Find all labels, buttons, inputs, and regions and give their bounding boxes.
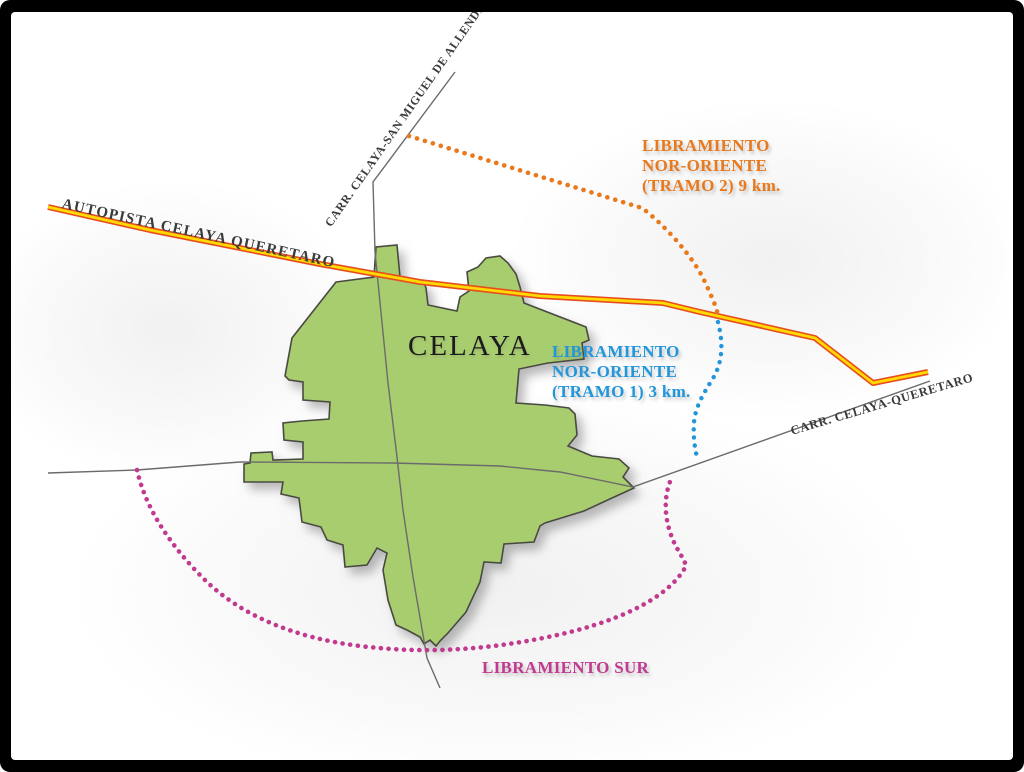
map-canvas [11, 12, 1013, 760]
libramiento-tramo2-line2: NOR-ORIENTE [642, 156, 781, 176]
city-name-label: CELAYA [408, 330, 532, 363]
libramiento-tramo1-label: LIBRAMIENTO NOR-ORIENTE (TRAMO 1) 3 km. [552, 342, 691, 402]
libramiento-tramo2-line1: LIBRAMIENTO [642, 136, 781, 156]
map-artwork: AUTOPISTA CELAYA QUERETARO CARR. CELAYA-… [11, 12, 1013, 760]
libramiento-tramo1-line2: NOR-ORIENTE [552, 362, 691, 382]
libramiento-tramo1-line1: LIBRAMIENTO [552, 342, 691, 362]
libramiento-tramo2-label: LIBRAMIENTO NOR-ORIENTE (TRAMO 2) 9 km. [642, 136, 781, 196]
libramiento-tramo2-line3: (TRAMO 2) 9 km. [642, 176, 781, 196]
map-frame: AUTOPISTA CELAYA QUERETARO CARR. CELAYA-… [0, 0, 1024, 772]
libramiento-sur-label: LIBRAMIENTO SUR [482, 658, 649, 678]
libramiento-tramo1-line3: (TRAMO 1) 3 km. [552, 382, 691, 402]
map-paper: AUTOPISTA CELAYA QUERETARO CARR. CELAYA-… [11, 12, 1013, 760]
